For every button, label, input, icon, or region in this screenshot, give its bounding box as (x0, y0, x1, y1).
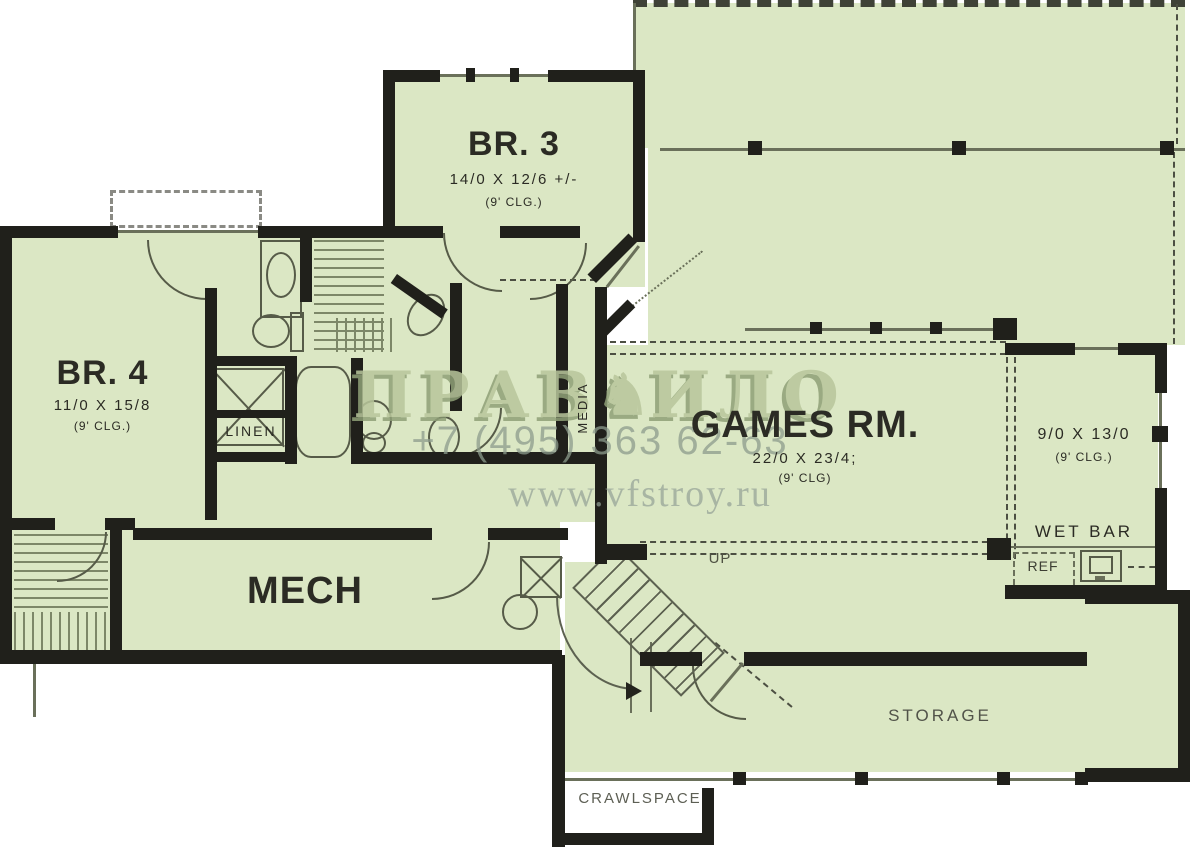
window-line (438, 74, 550, 77)
wall-segment (463, 452, 607, 464)
wall-segment (1155, 343, 1167, 393)
up-label: UP (698, 550, 742, 567)
br3-label: BR. 3 (383, 125, 645, 164)
deck-post (930, 322, 942, 334)
games-room-dims: 22/0 X 23/4; (640, 450, 970, 467)
wall-segment (133, 528, 432, 540)
window-line (1159, 393, 1162, 428)
window-line (1159, 442, 1162, 488)
deck-dashed-edge-right (1173, 152, 1175, 344)
wall-segment (0, 518, 55, 530)
wall-segment (552, 655, 565, 847)
br4-ceiling: (9' CLG.) (0, 419, 205, 433)
ref-label: REF (1014, 558, 1072, 574)
wall-segment (395, 226, 443, 238)
foundation-post (1075, 772, 1088, 785)
header-dashed-line (640, 541, 1008, 543)
storage-label: STORAGE (852, 706, 1028, 726)
deck-edge-line (660, 148, 1185, 151)
toilet-tank (290, 312, 304, 352)
storage-floor-east (1085, 602, 1182, 772)
wall-segment (300, 226, 312, 302)
br3-dims: 14/0 X 12/6 +/- (383, 171, 645, 188)
wall-segment (205, 356, 297, 366)
patio-dashed-edge-right (1176, 4, 1178, 144)
window-mullion (466, 68, 475, 82)
deck-corner-post (993, 318, 1017, 340)
wall-segment (1005, 343, 1075, 355)
foundation-post (733, 772, 746, 785)
wall-segment (450, 283, 462, 411)
bathtub (295, 366, 351, 458)
toilet-seat (362, 432, 386, 454)
crawlspace-label: CRAWLSPACE (556, 790, 724, 807)
wall-segment (105, 518, 135, 530)
wall-segment (488, 528, 568, 540)
window-well-dashed (110, 190, 262, 228)
patio-floor (633, 3, 1185, 148)
wall-segment (205, 288, 217, 520)
wall-segment (110, 530, 122, 662)
wall-segment (500, 226, 580, 238)
wall-segment (744, 652, 1087, 666)
crawlspace-line (33, 662, 36, 717)
br4-dims: 11/0 X 15/8 (0, 397, 205, 414)
deck-post (810, 322, 822, 334)
br3-ceiling: (9' CLG.) (383, 195, 645, 209)
equipment-x-line (522, 556, 563, 597)
window-line (1068, 347, 1124, 350)
sink-basin (266, 252, 296, 298)
closet-rod-hatch (336, 318, 396, 352)
water-heater (520, 556, 562, 598)
deck-post (748, 141, 762, 155)
deck-post (1160, 141, 1174, 155)
header-dashed-line (640, 553, 1008, 555)
games-room-ceiling: (9' CLG) (640, 471, 970, 485)
stair-direction-arrow (626, 682, 642, 700)
header-dashed-line (610, 353, 1006, 355)
wall-segment (205, 452, 297, 462)
header-dashed-line (610, 341, 1006, 343)
window-line (112, 230, 260, 233)
closet-rod-hatch (14, 612, 108, 652)
wall-segment (351, 358, 363, 464)
wall-segment (0, 650, 562, 664)
toilet-bowl (252, 314, 290, 348)
counter-line (1008, 546, 1160, 548)
wall-segment (552, 833, 714, 845)
wall-segment (548, 70, 645, 82)
deck-post (952, 141, 966, 155)
wall-segment (595, 544, 647, 560)
bonus-room-dims: 9/0 X 13/0 (1008, 426, 1160, 444)
deck-post (870, 322, 882, 334)
patio-dashed-edge-top (633, 0, 1185, 7)
deck-floor (648, 148, 1185, 345)
linen-label: LINEN (207, 423, 295, 439)
equipment-tank (502, 594, 538, 630)
wall-segment (351, 452, 466, 464)
floor-plan: ПРАВ ♞ ИЛО +7 (495) 363 62-63 www.vfstro… (0, 0, 1200, 858)
wall-segment (1178, 590, 1190, 782)
bonus-room-ceiling: (9' CLG.) (1008, 450, 1160, 464)
games-room-label: GAMES RM. (640, 404, 970, 447)
foundation-post (855, 772, 868, 785)
br4-label: BR. 4 (0, 354, 205, 393)
wall-segment (205, 410, 297, 418)
wall-segment (1005, 585, 1167, 599)
foundation-post (997, 772, 1010, 785)
bar-sink-basin (1089, 556, 1113, 574)
wall-segment (1085, 768, 1185, 782)
media-label: MEDIA (575, 374, 591, 442)
wall-segment (258, 226, 398, 238)
wall-segment (556, 284, 568, 464)
wall-segment (0, 226, 118, 238)
wet-bar-label: WET BAR (1008, 522, 1160, 542)
window-mullion (510, 68, 519, 82)
mech-label: MECH (180, 570, 430, 613)
wall-segment (0, 226, 12, 662)
wall-segment (640, 652, 702, 666)
